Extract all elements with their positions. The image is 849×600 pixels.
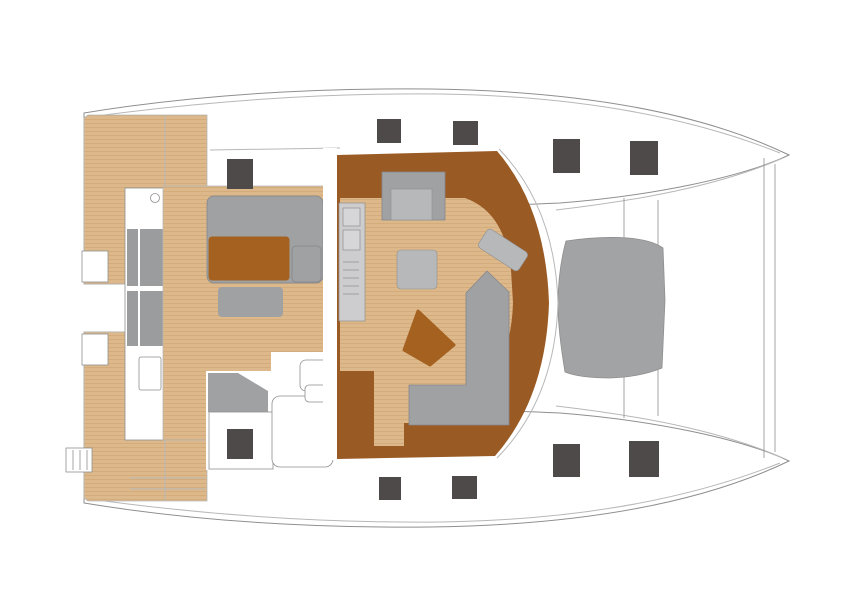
helm-console-hatch bbox=[227, 429, 253, 459]
aft-step-pad bbox=[127, 291, 138, 346]
saloon-center-table bbox=[397, 250, 437, 289]
boarding-ladder bbox=[66, 448, 92, 472]
deck-plan-canvas bbox=[0, 0, 849, 600]
deck-hatch bbox=[452, 476, 477, 499]
cockpit-side-module bbox=[292, 246, 321, 282]
aft-step-pad bbox=[127, 229, 138, 286]
deck-hatch bbox=[553, 444, 580, 477]
deck-hatch bbox=[379, 477, 401, 500]
deck-hatch bbox=[629, 441, 659, 477]
galley-sink bbox=[343, 208, 360, 226]
aft-step-pad bbox=[140, 291, 164, 346]
saloon-lower-cabinet bbox=[340, 371, 374, 449]
port-transom-step-notch bbox=[82, 251, 108, 282]
aft-locker-lid bbox=[139, 357, 161, 390]
saloon-door-gap bbox=[323, 148, 337, 460]
aft-step-pad bbox=[140, 229, 164, 286]
cockpit-table bbox=[210, 238, 288, 279]
deck-hatch bbox=[453, 121, 478, 145]
starboard-transom-step-notch bbox=[82, 334, 108, 365]
catamaran-deck-plan bbox=[0, 0, 849, 600]
deck-hatch bbox=[227, 159, 253, 189]
foredeck-sunpad bbox=[558, 237, 665, 378]
cockpit-bench bbox=[218, 287, 283, 317]
deck-hatch bbox=[630, 141, 658, 175]
deck-filler-cap bbox=[151, 194, 160, 203]
galley-sink bbox=[343, 230, 360, 250]
deck-hatch bbox=[553, 139, 580, 173]
saloon-berth-cushion bbox=[391, 189, 432, 220]
deck-hatch bbox=[377, 119, 401, 143]
